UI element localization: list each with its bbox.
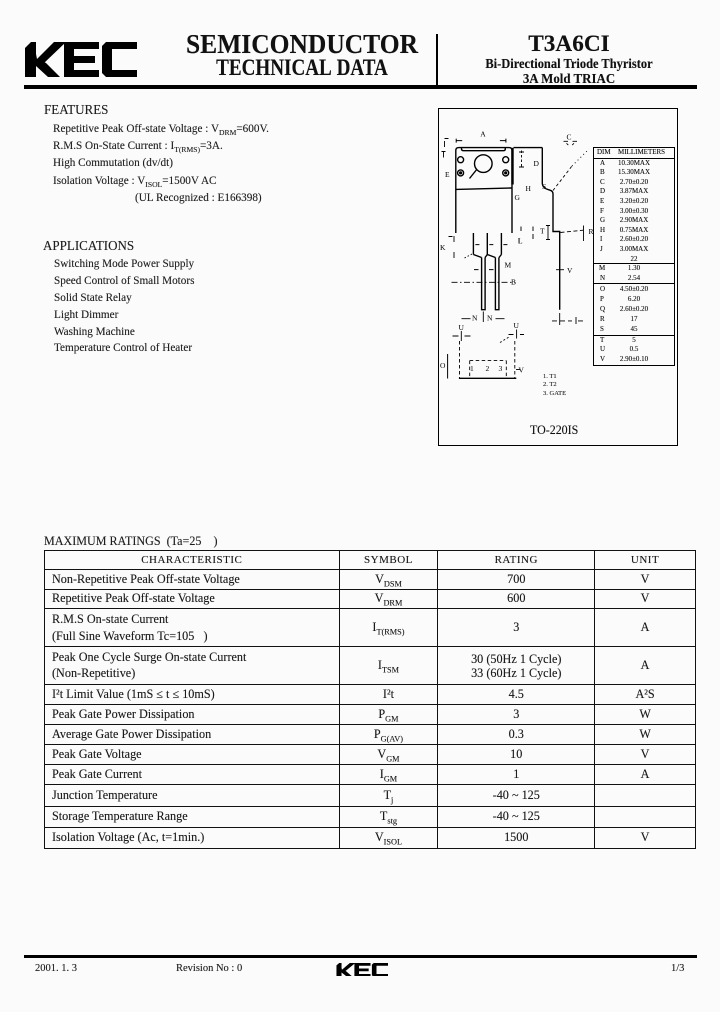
svg-text:N: N — [487, 314, 493, 323]
svg-text:N: N — [472, 314, 478, 323]
svg-text:V: V — [519, 366, 525, 375]
svg-text:1: 1 — [470, 364, 474, 373]
svg-text:U: U — [514, 321, 520, 330]
svg-text:T: T — [540, 227, 545, 236]
svg-text:S: S — [542, 182, 546, 191]
svg-text:E: E — [445, 170, 450, 179]
svg-text:U: U — [459, 323, 465, 332]
svg-text:A: A — [480, 130, 486, 139]
svg-text:M: M — [505, 261, 512, 270]
svg-text:K: K — [440, 243, 446, 252]
svg-text:B: B — [511, 278, 516, 287]
svg-text:D: D — [534, 159, 540, 168]
svg-text:H: H — [526, 184, 532, 193]
svg-text:G: G — [515, 193, 521, 202]
svg-text:C: C — [567, 133, 572, 142]
svg-text:R: R — [589, 227, 594, 236]
svg-text:3: 3 — [499, 364, 503, 373]
svg-text:V: V — [567, 266, 573, 275]
svg-text:O: O — [440, 361, 446, 370]
svg-text:2: 2 — [486, 364, 490, 373]
